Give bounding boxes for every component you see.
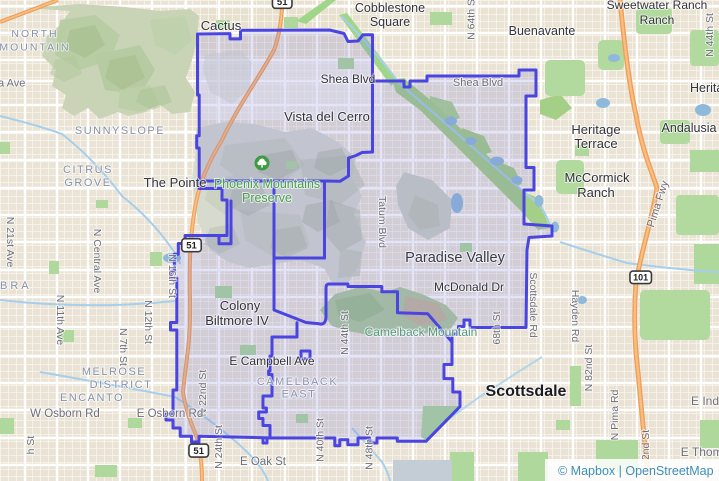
svg-text:51: 51 — [277, 0, 288, 8]
svg-text:GROVE: GROVE — [64, 177, 111, 189]
svg-text:Colony: Colony — [220, 298, 261, 313]
svg-text:N 82nd St: N 82nd St — [583, 345, 595, 392]
svg-text:BRA: BRA — [0, 280, 32, 292]
svg-text:DISTRICT: DISTRICT — [90, 379, 153, 391]
svg-text:E Osborn Rd: E Osborn Rd — [137, 408, 203, 420]
svg-text:N 24th St: N 24th St — [213, 425, 225, 469]
svg-text:51: 51 — [186, 241, 197, 252]
svg-text:E Campbell Ave: E Campbell Ave — [229, 354, 314, 368]
svg-text:W Osborn Rd: W Osborn Rd — [30, 408, 100, 420]
svg-text:N Pima Rd: N Pima Rd — [609, 389, 621, 440]
svg-text:N 21st Ave: N 21st Ave — [4, 217, 16, 268]
svg-text:Heritage: Heritage — [571, 122, 620, 137]
svg-text:Ranch: Ranch — [640, 13, 675, 27]
svg-text:N 11th Ave: N 11th Ave — [54, 295, 66, 346]
svg-text:CAMELBACK: CAMELBACK — [257, 376, 338, 388]
svg-text:Scottsdale Rd: Scottsdale Rd — [527, 272, 539, 338]
svg-text:Preserve: Preserve — [242, 191, 292, 205]
svg-text:N 7th St: N 7th St — [117, 328, 129, 366]
svg-text:101: 101 — [633, 272, 648, 282]
svg-text:E Ind: E Ind — [691, 394, 719, 408]
svg-text:SUNNYSLOPE: SUNNYSLOPE — [75, 125, 165, 137]
svg-text:Shea Blvd: Shea Blvd — [321, 72, 376, 86]
svg-text:Shea Blvd: Shea Blvd — [453, 77, 503, 89]
svg-text:ENCANTO: ENCANTO — [60, 392, 124, 404]
svg-text:McCormick: McCormick — [565, 170, 630, 185]
svg-text:Vista del Cerro: Vista del Cerro — [284, 109, 370, 124]
svg-text:E Thoma: E Thoma — [681, 445, 719, 459]
svg-text:N Central Ave: N Central Ave — [91, 229, 103, 294]
svg-text:Paradise Valley: Paradise Valley — [405, 250, 505, 266]
svg-text:Terrace: Terrace — [574, 136, 617, 151]
svg-text:N 48th St: N 48th St — [364, 426, 376, 470]
svg-text:Camelback Mountain: Camelback Mountain — [365, 325, 478, 339]
svg-text:MOUNTAIN: MOUNTAIN — [0, 42, 71, 54]
svg-text:2nd St: 2nd St — [640, 430, 652, 460]
svg-text:Ranch: Ranch — [577, 185, 615, 200]
svg-text:N 64th St: N 64th St — [466, 0, 478, 40]
svg-text:MELROSE: MELROSE — [82, 366, 146, 378]
svg-text:Biltmore IV: Biltmore IV — [205, 313, 269, 328]
svg-text:McDonald Dr: McDonald Dr — [434, 280, 504, 294]
svg-text:Tatum Blvd: Tatum Blvd — [376, 196, 388, 248]
svg-text:N 12th St: N 12th St — [142, 300, 154, 344]
svg-text:h St: h St — [25, 436, 37, 455]
svg-text:51: 51 — [193, 446, 204, 457]
svg-text:N 44th St: N 44th St — [704, 13, 716, 57]
svg-text:Cobblestone: Cobblestone — [355, 1, 425, 15]
svg-text:Square: Square — [370, 15, 410, 29]
svg-text:Herita: Herita — [690, 81, 719, 95]
svg-text:N 16th St: N 16th St — [166, 254, 178, 298]
svg-text:Cactus: Cactus — [201, 18, 242, 33]
svg-text:a Ave: a Ave — [0, 78, 25, 90]
svg-text:EAST: EAST — [282, 389, 317, 401]
svg-text:Scottsdale: Scottsdale — [486, 383, 567, 400]
svg-text:© Mapbox | OpenStreetMap: © Mapbox | OpenStreetMap — [558, 464, 714, 478]
svg-text:Andalusia: Andalusia — [662, 121, 717, 135]
svg-text:E Oak St: E Oak St — [240, 456, 287, 468]
svg-text:NORTH: NORTH — [11, 28, 58, 40]
svg-text:N 44th St: N 44th St — [339, 311, 351, 355]
svg-text:Buenavante: Buenavante — [509, 24, 576, 38]
svg-text:CITRUS: CITRUS — [63, 164, 113, 176]
svg-text:Hayden Rd: Hayden Rd — [569, 290, 581, 343]
svg-text:N 40th St: N 40th St — [315, 418, 327, 462]
svg-text:The Pointe: The Pointe — [144, 175, 207, 190]
svg-text:68th St: 68th St — [491, 311, 503, 344]
svg-text:Sweetwater Ranch: Sweetwater Ranch — [607, 0, 708, 12]
svg-text:Phoenix Mountains: Phoenix Mountains — [214, 177, 320, 191]
